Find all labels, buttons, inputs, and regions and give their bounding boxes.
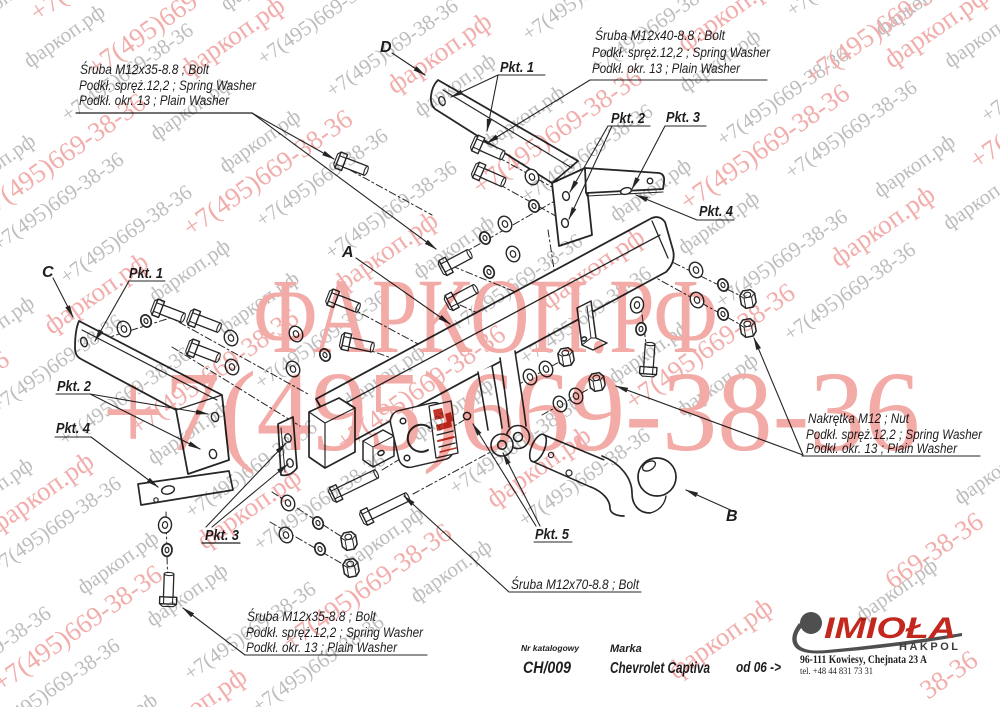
svg-text:фаркоп.рф: фаркоп.рф [71,687,161,707]
svg-text:фаркоп.рф: фаркоп.рф [662,591,778,685]
svg-text:38-36: 38-36 [914,644,983,705]
svg-text:фаркоп.рф: фаркоп.рф [144,234,234,307]
svg-text:фаркоп.рф: фаркоп.рф [0,290,38,363]
svg-text:фаркоп.рф: фаркоп.рф [938,161,1000,234]
svg-text:669-38-36: 669-38-36 [879,506,988,595]
svg-text:+7(495)669-38-36: +7(495)669-38-36 [102,348,920,475]
svg-text:фаркоп.рф: фаркоп.рф [949,436,1000,509]
svg-text:фаркоп.рф: фаркоп.рф [0,31,1,125]
